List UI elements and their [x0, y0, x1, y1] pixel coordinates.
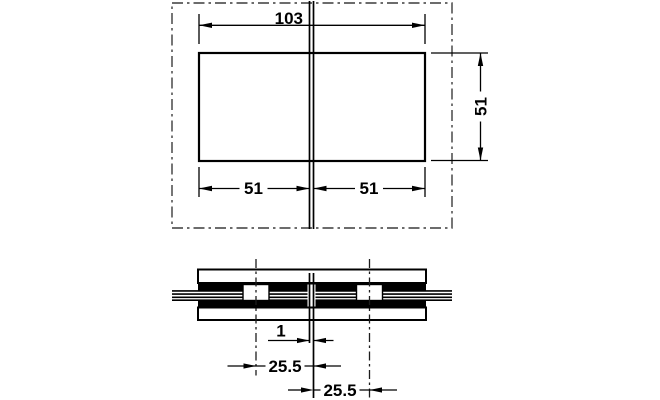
dim-label-offset-right: 25.5 — [323, 381, 356, 400]
arrowhead-left-icon — [199, 186, 212, 191]
arrowhead-right-icon — [297, 338, 310, 343]
dim-label-glass-gap: 1 — [276, 322, 285, 341]
arrowhead-left-icon — [314, 363, 327, 368]
dim-half-left: 51 — [199, 167, 310, 198]
top-view: 103 51 51 5 — [172, 3, 491, 228]
arrowhead-left-icon — [314, 186, 327, 191]
technical-drawing: 103 51 51 5 — [0, 0, 660, 400]
arrowhead-left-icon — [199, 23, 212, 28]
dim-label-right-half: 51 — [360, 179, 379, 198]
drawing-canvas: 103 51 51 5 — [0, 0, 660, 400]
top-cover-plate — [198, 270, 426, 284]
dim-label-offset-left: 25.5 — [268, 357, 301, 376]
dim-label-height: 51 — [472, 97, 491, 116]
dim-label-left-half: 51 — [244, 179, 263, 198]
section-view: 1 25.5 25.5 — [172, 259, 452, 400]
dim-offset-right: 25.5 — [288, 381, 397, 400]
arrowhead-down-icon — [478, 148, 483, 161]
dim-height: 51 — [431, 53, 491, 161]
arrowhead-right-icon — [244, 363, 257, 368]
arrowhead-left-icon — [314, 338, 327, 343]
arrowhead-right-icon — [301, 387, 314, 392]
dim-label-overall-width: 103 — [275, 9, 303, 28]
arrowhead-up-icon — [478, 53, 483, 66]
arrowhead-right-icon — [412, 23, 425, 28]
dim-half-right: 51 — [314, 167, 426, 198]
arrowhead-right-icon — [412, 186, 425, 191]
dim-glass-gap: 1 — [268, 322, 334, 344]
dim-offset-left: 25.5 — [228, 357, 342, 376]
arrowhead-left-icon — [370, 387, 383, 392]
bottom-cover-plate — [198, 308, 426, 321]
arrowhead-right-icon — [297, 186, 310, 191]
dim-overall-width: 103 — [199, 9, 425, 44]
fitting-outline — [199, 53, 425, 161]
